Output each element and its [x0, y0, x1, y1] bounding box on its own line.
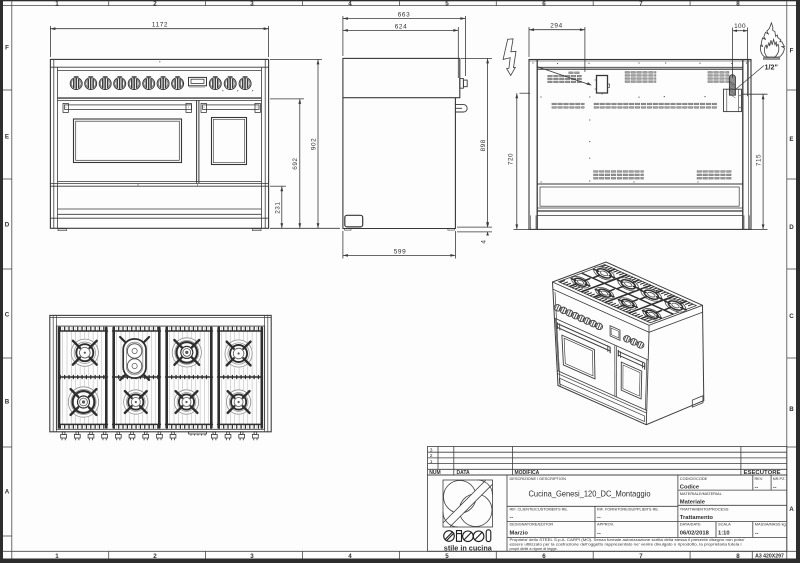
- svg-text:1: 1: [55, 553, 59, 560]
- svg-text:8: 8: [736, 0, 740, 7]
- svg-text:RIF. CLIENTE/CUSTOMER'S RE.: RIF. CLIENTE/CUSTOMER'S RE.: [510, 506, 569, 511]
- svg-text:MASSA/MASS kg: MASSA/MASS kg: [755, 522, 786, 527]
- svg-text:1: 1: [430, 459, 433, 465]
- svg-text:DATA/DATE: DATA/DATE: [680, 522, 701, 527]
- svg-text:3: 3: [430, 447, 433, 453]
- svg-text:essere utilizzato per la costr: essere utilizzato per la costruzione del…: [510, 543, 742, 547]
- svg-text:06/02/2018: 06/02/2018: [680, 530, 710, 536]
- svg-text:DESIGNATORE/EDITOR: DESIGNATORE/EDITOR: [510, 522, 554, 527]
- svg-text:5: 5: [445, 0, 449, 7]
- svg-text:REV.: REV.: [755, 476, 764, 481]
- svg-text:624: 624: [395, 23, 407, 30]
- svg-text:Trattamento: Trattamento: [680, 515, 714, 521]
- svg-text:5: 5: [445, 553, 449, 560]
- svg-text:Cucina_Genesi_120_DC_Montaggio: Cucina_Genesi_120_DC_Montaggio: [529, 489, 651, 499]
- svg-text:APPROV.: APPROV.: [597, 522, 614, 527]
- svg-text:stile in cucina: stile in cucina: [444, 544, 493, 553]
- svg-text:7: 7: [639, 553, 643, 560]
- svg-text:Materiale: Materiale: [680, 500, 706, 506]
- svg-text:F: F: [5, 45, 9, 52]
- svg-text:902: 902: [310, 138, 317, 150]
- svg-text:2: 2: [430, 453, 433, 459]
- svg-text:3: 3: [250, 0, 254, 7]
- svg-text:231: 231: [274, 202, 281, 214]
- svg-text:8: 8: [736, 553, 740, 560]
- svg-text:A3 420X297: A3 420X297: [755, 554, 784, 560]
- svg-text:720: 720: [507, 153, 514, 165]
- svg-text:TRATTAMENTO/PROCESS: TRATTAMENTO/PROCESS: [680, 506, 729, 511]
- svg-text:1172: 1172: [152, 22, 168, 29]
- svg-text:7: 7: [639, 0, 643, 7]
- svg-text:--: --: [755, 530, 759, 536]
- svg-text:Proprieta' dello STEEL S.p.A.: Proprieta' dello STEEL S.p.A. CARPI (MO)…: [510, 538, 745, 542]
- svg-text:715: 715: [756, 154, 763, 166]
- svg-text:663: 663: [398, 11, 410, 18]
- svg-text:6: 6: [542, 0, 546, 7]
- svg-text:DESCRIZIONE / DESCRIPTION: DESCRIZIONE / DESCRIPTION: [510, 476, 567, 481]
- svg-text:4: 4: [480, 240, 487, 244]
- svg-text:B: B: [789, 406, 794, 413]
- svg-text:D: D: [789, 224, 794, 231]
- svg-text:D: D: [5, 222, 10, 229]
- svg-text:2: 2: [153, 553, 157, 560]
- svg-text:2: 2: [153, 0, 157, 7]
- svg-text:898: 898: [480, 139, 487, 151]
- svg-text:E: E: [789, 136, 793, 143]
- svg-text:--: --: [773, 485, 777, 491]
- svg-text:6: 6: [542, 553, 546, 560]
- svg-text:C: C: [5, 312, 10, 319]
- svg-text:1:10: 1:10: [718, 530, 730, 536]
- svg-text:--: --: [597, 514, 601, 520]
- svg-text:692: 692: [292, 158, 299, 170]
- svg-text:3: 3: [250, 553, 254, 560]
- svg-text:RIF. FORNITORE/SUPPLIER'S RE.: RIF. FORNITORE/SUPPLIER'S RE.: [597, 506, 659, 511]
- svg-text:4: 4: [348, 0, 352, 7]
- svg-text:--: --: [510, 514, 514, 520]
- svg-text:1/2": 1/2": [765, 63, 778, 72]
- svg-text:F: F: [790, 48, 794, 55]
- svg-text:A: A: [789, 506, 794, 513]
- svg-text:294: 294: [550, 23, 562, 30]
- svg-text:A: A: [5, 489, 10, 496]
- svg-text:propri diritti a rigore di leg: propri diritti a rigore di legge.: [510, 547, 558, 551]
- svg-text:--: --: [755, 485, 759, 491]
- svg-text:C: C: [789, 313, 794, 320]
- svg-text:SCALA: SCALA: [718, 522, 731, 527]
- svg-text:Codice: Codice: [680, 485, 700, 491]
- svg-text:4: 4: [348, 553, 352, 560]
- svg-text:MATERIALE/MATERIAL: MATERIALE/MATERIAL: [680, 491, 723, 496]
- svg-text:Marzio: Marzio: [510, 530, 529, 536]
- svg-text:NR.PZ.: NR.PZ.: [773, 476, 786, 481]
- svg-text:--: --: [597, 530, 601, 536]
- svg-text:E: E: [5, 134, 9, 141]
- svg-text:1: 1: [55, 0, 59, 7]
- svg-text:599: 599: [394, 248, 406, 255]
- svg-text:CODICE/CODE: CODICE/CODE: [680, 476, 708, 481]
- svg-text:B: B: [5, 399, 10, 406]
- svg-text:100: 100: [734, 23, 746, 30]
